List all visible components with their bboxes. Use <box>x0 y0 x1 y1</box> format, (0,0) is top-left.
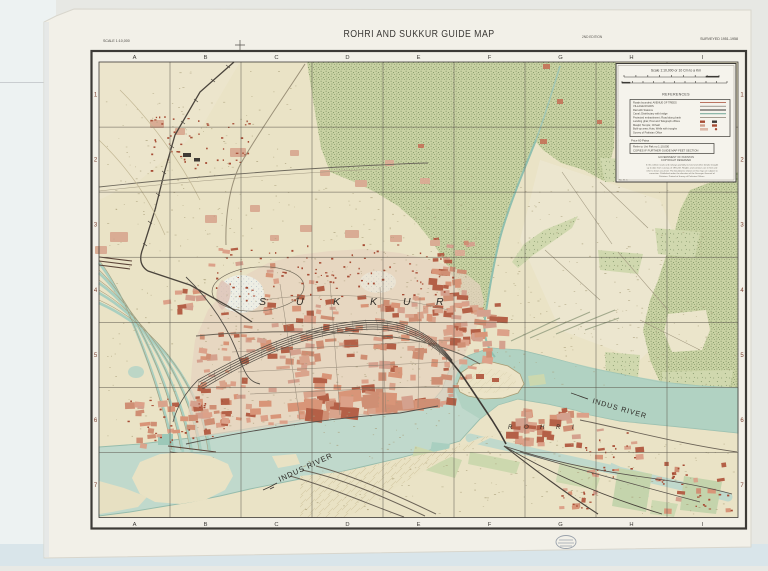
svg-text:H: H <box>629 522 633 528</box>
svg-text:D: D <box>345 55 349 61</box>
svg-text:Survey of Pakistan Office: Survey of Pakistan Office <box>633 130 663 134</box>
svg-text:Pakistan. Printed at Survey of: Pakistan. Printed at Survey of Pakistan … <box>659 175 705 178</box>
svg-text:D: D <box>345 522 349 528</box>
svg-text:COPYRIGHT RESERVED: COPYRIGHT RESERVED <box>661 158 691 162</box>
svg-text:Roads bounded; AVENUE OF TREE: Roads bounded; AVENUE OF TREES <box>633 100 677 104</box>
svg-text:A: A <box>133 55 137 61</box>
svg-text:Protected embankment; Road alo: Protected embankment; Road along bank <box>633 115 682 119</box>
svg-text:R: R <box>436 296 444 308</box>
svg-text:SCALE 1:10,000: SCALE 1:10,000 <box>103 39 130 43</box>
svg-text:Scale 1:10,000 or 10 Cm to a K: Scale 1:10,000 or 10 Cm to a Km <box>651 69 701 73</box>
svg-text:Canal; Distributary with bridg: Canal; Distributary with bridge <box>633 112 668 116</box>
svg-text:R: R <box>556 425 561 431</box>
svg-text:correction. Published under th: correction. Published under the directio… <box>649 172 715 175</box>
svg-text:up to date from surveys of 195: up to date from surveys of 1951-58. Heig… <box>647 166 718 169</box>
svg-text:B: B <box>204 55 208 61</box>
svg-text:ROHRI AND SUKKUR GUIDE MAP: ROHRI AND SUKKUR GUIDE MAP <box>343 27 494 39</box>
svg-text:Rail with Stations: Rail with Stations <box>633 108 654 112</box>
svg-text:F: F <box>488 522 492 528</box>
svg-text:E: E <box>417 55 421 61</box>
svg-text:COPIES IF FURTHER GUIDE MAP FE: COPIES IF FURTHER GUIDE MAP FEET SECTION <box>633 149 698 153</box>
svg-text:E: E <box>417 522 421 528</box>
svg-text:VILLAGE ROADS: VILLAGE ROADS <box>633 104 654 108</box>
svg-text:Landing ghat; Post and Telegra: Landing ghat; Post and Telegraph offices <box>633 119 681 123</box>
svg-text:2ND EDITION: 2ND EDITION <box>582 35 603 39</box>
svg-text:G: G <box>558 522 563 528</box>
svg-text:In this edition roads and rail: In this edition roads and railways parti… <box>646 164 719 167</box>
svg-text:C: C <box>274 55 278 61</box>
svg-text:H: H <box>540 425 545 431</box>
svg-text:U: U <box>296 296 304 308</box>
svg-text:Price 60 Paisa: Price 60 Paisa <box>631 139 649 143</box>
svg-text:K: K <box>333 296 341 308</box>
svg-text:Masjid; Temple; Chhatri: Masjid; Temple; Chhatri <box>633 123 660 127</box>
svg-text:B: B <box>204 522 208 528</box>
svg-text:No. 51 C: No. 51 C <box>619 180 628 182</box>
svg-text:refer to mean sea level. The b: refer to mean sea level. The boundaries … <box>646 169 718 172</box>
svg-text:S: S <box>259 296 266 308</box>
svg-text:U: U <box>403 296 411 308</box>
svg-text:Built-up area; Huts; Wells wit: Built-up area; Huts; Wells with troughs <box>633 127 678 131</box>
svg-text:SURVEYED 1951-1958: SURVEYED 1951-1958 <box>700 37 738 41</box>
svg-text:REFERENCES: REFERENCES <box>662 93 690 97</box>
svg-text:K: K <box>370 296 378 308</box>
svg-text:H: H <box>629 55 633 61</box>
svg-text:C: C <box>274 522 278 528</box>
svg-text:R: R <box>508 425 513 431</box>
svg-text:A: A <box>133 522 137 528</box>
svg-text:G: G <box>558 55 563 61</box>
svg-text:F: F <box>488 55 492 61</box>
